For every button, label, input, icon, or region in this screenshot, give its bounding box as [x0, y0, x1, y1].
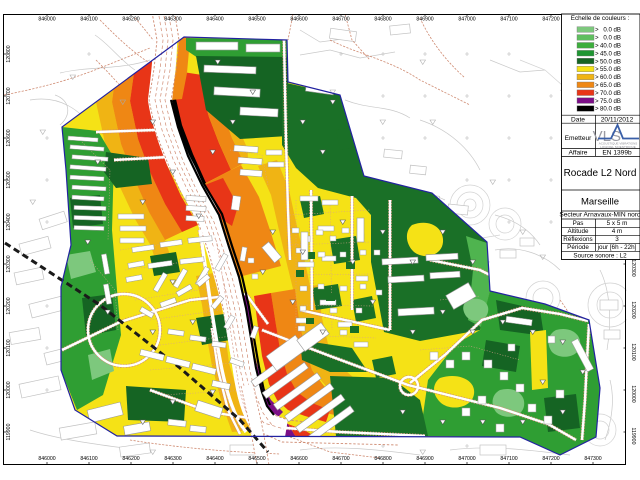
svg-text:120400: 120400 [6, 213, 12, 230]
svg-text:119900: 119900 [6, 423, 12, 440]
svg-text:>: > [595, 35, 599, 42]
svg-text:60.0 dB: 60.0 dB [600, 74, 621, 81]
svg-text:>: > [595, 98, 599, 105]
svg-text:Source sonore : L2: Source sonore : L2 [573, 253, 627, 260]
svg-text:EN 1399b: EN 1399b [602, 149, 632, 156]
svg-text:Secteur Arnavaux-MIN nord: Secteur Arnavaux-MIN nord [559, 212, 640, 219]
svg-text:847000: 847000 [458, 456, 475, 462]
svg-text:>: > [595, 50, 599, 57]
svg-text:846200: 846200 [122, 17, 139, 23]
svg-text:80.0 dB: 80.0 dB [600, 106, 621, 113]
svg-text:120800: 120800 [6, 45, 12, 62]
svg-text:jour [6h - 22h]: jour [6h - 22h] [597, 244, 637, 251]
svg-text:Rocade L2 Nord: Rocade L2 Nord [564, 168, 637, 179]
svg-text:846000: 846000 [38, 456, 55, 462]
svg-text:846300: 846300 [164, 456, 181, 462]
svg-text:120300: 120300 [6, 255, 12, 272]
svg-text:846800: 846800 [374, 17, 391, 23]
svg-text:40.0 dB: 40.0 dB [600, 43, 621, 50]
svg-text:846700: 846700 [332, 456, 349, 462]
svg-text:846400: 846400 [206, 456, 223, 462]
svg-text:846800: 846800 [374, 456, 391, 462]
svg-text:Pas: Pas [573, 220, 584, 227]
svg-text:Altitude: Altitude [567, 228, 589, 235]
svg-text:70.0 dB: 70.0 dB [600, 90, 621, 97]
svg-text:120700: 120700 [6, 87, 12, 104]
svg-text:3: 3 [615, 236, 619, 243]
svg-text:120100: 120100 [630, 343, 636, 360]
svg-text:846100: 846100 [80, 17, 97, 23]
svg-text:Marseille: Marseille [581, 197, 619, 208]
svg-text:120100: 120100 [6, 339, 12, 356]
svg-text:>: > [595, 82, 599, 89]
svg-text:120000: 120000 [6, 381, 12, 398]
svg-text:>: > [595, 66, 599, 73]
svg-text:0.0 dB: 0.0 dB [603, 35, 621, 42]
svg-text:120200: 120200 [6, 297, 12, 314]
svg-text:Emetteur: Emetteur [565, 135, 593, 142]
svg-text:>: > [595, 74, 599, 81]
svg-text:846500: 846500 [248, 456, 265, 462]
svg-text:5 x 5 m: 5 x 5 m [607, 220, 628, 227]
svg-text:Date: Date [571, 116, 585, 123]
svg-text:120000: 120000 [630, 385, 636, 402]
svg-text:Période: Période [567, 244, 589, 251]
svg-text:4 m: 4 m [612, 228, 623, 235]
svg-text:>: > [595, 106, 599, 113]
svg-text:75.0 dB: 75.0 dB [600, 98, 621, 105]
svg-text:847000: 847000 [458, 17, 475, 23]
svg-text:Réflexions: Réflexions [563, 236, 592, 243]
svg-text:120500: 120500 [6, 171, 12, 188]
svg-text:846600: 846600 [290, 17, 307, 23]
svg-text:LOGICIEL SCIENTIFIQUE: LOGICIEL SCIENTIFIQUE [600, 145, 636, 149]
svg-text:0.0 dB: 0.0 dB [603, 27, 621, 34]
svg-text:55.0 dB: 55.0 dB [600, 66, 621, 73]
svg-text:50.0 dB: 50.0 dB [600, 58, 621, 65]
svg-text:>: > [595, 90, 599, 97]
svg-text:120600: 120600 [6, 129, 12, 146]
svg-text:846400: 846400 [206, 17, 223, 23]
svg-text:119900: 119900 [630, 428, 636, 445]
svg-text:847200: 847200 [542, 17, 559, 23]
svg-text:Affaire: Affaire [569, 149, 588, 156]
svg-text:65.0 dB: 65.0 dB [600, 82, 621, 89]
svg-text:846100: 846100 [80, 456, 97, 462]
svg-text:846300: 846300 [164, 17, 181, 23]
svg-text:Echelle de couleurs :: Echelle de couleurs : [571, 15, 630, 22]
svg-text:120300: 120300 [630, 259, 636, 276]
svg-text:>: > [595, 58, 599, 65]
svg-text:846000: 846000 [38, 17, 55, 23]
svg-text:846200: 846200 [122, 456, 139, 462]
svg-text:846900: 846900 [416, 456, 433, 462]
svg-text:847300: 847300 [584, 456, 601, 462]
svg-text:847200: 847200 [542, 456, 559, 462]
svg-text:847100: 847100 [500, 456, 517, 462]
svg-text:120200: 120200 [630, 301, 636, 318]
svg-text:846900: 846900 [416, 17, 433, 23]
svg-text:>: > [595, 43, 599, 50]
svg-text:846500: 846500 [248, 17, 265, 23]
svg-text:>: > [595, 27, 599, 34]
svg-text:847100: 847100 [500, 17, 517, 23]
svg-text:846700: 846700 [332, 17, 349, 23]
svg-text:20/11/2012: 20/11/2012 [601, 116, 634, 123]
svg-text:45.0 dB: 45.0 dB [600, 50, 621, 57]
svg-text:846600: 846600 [290, 456, 307, 462]
